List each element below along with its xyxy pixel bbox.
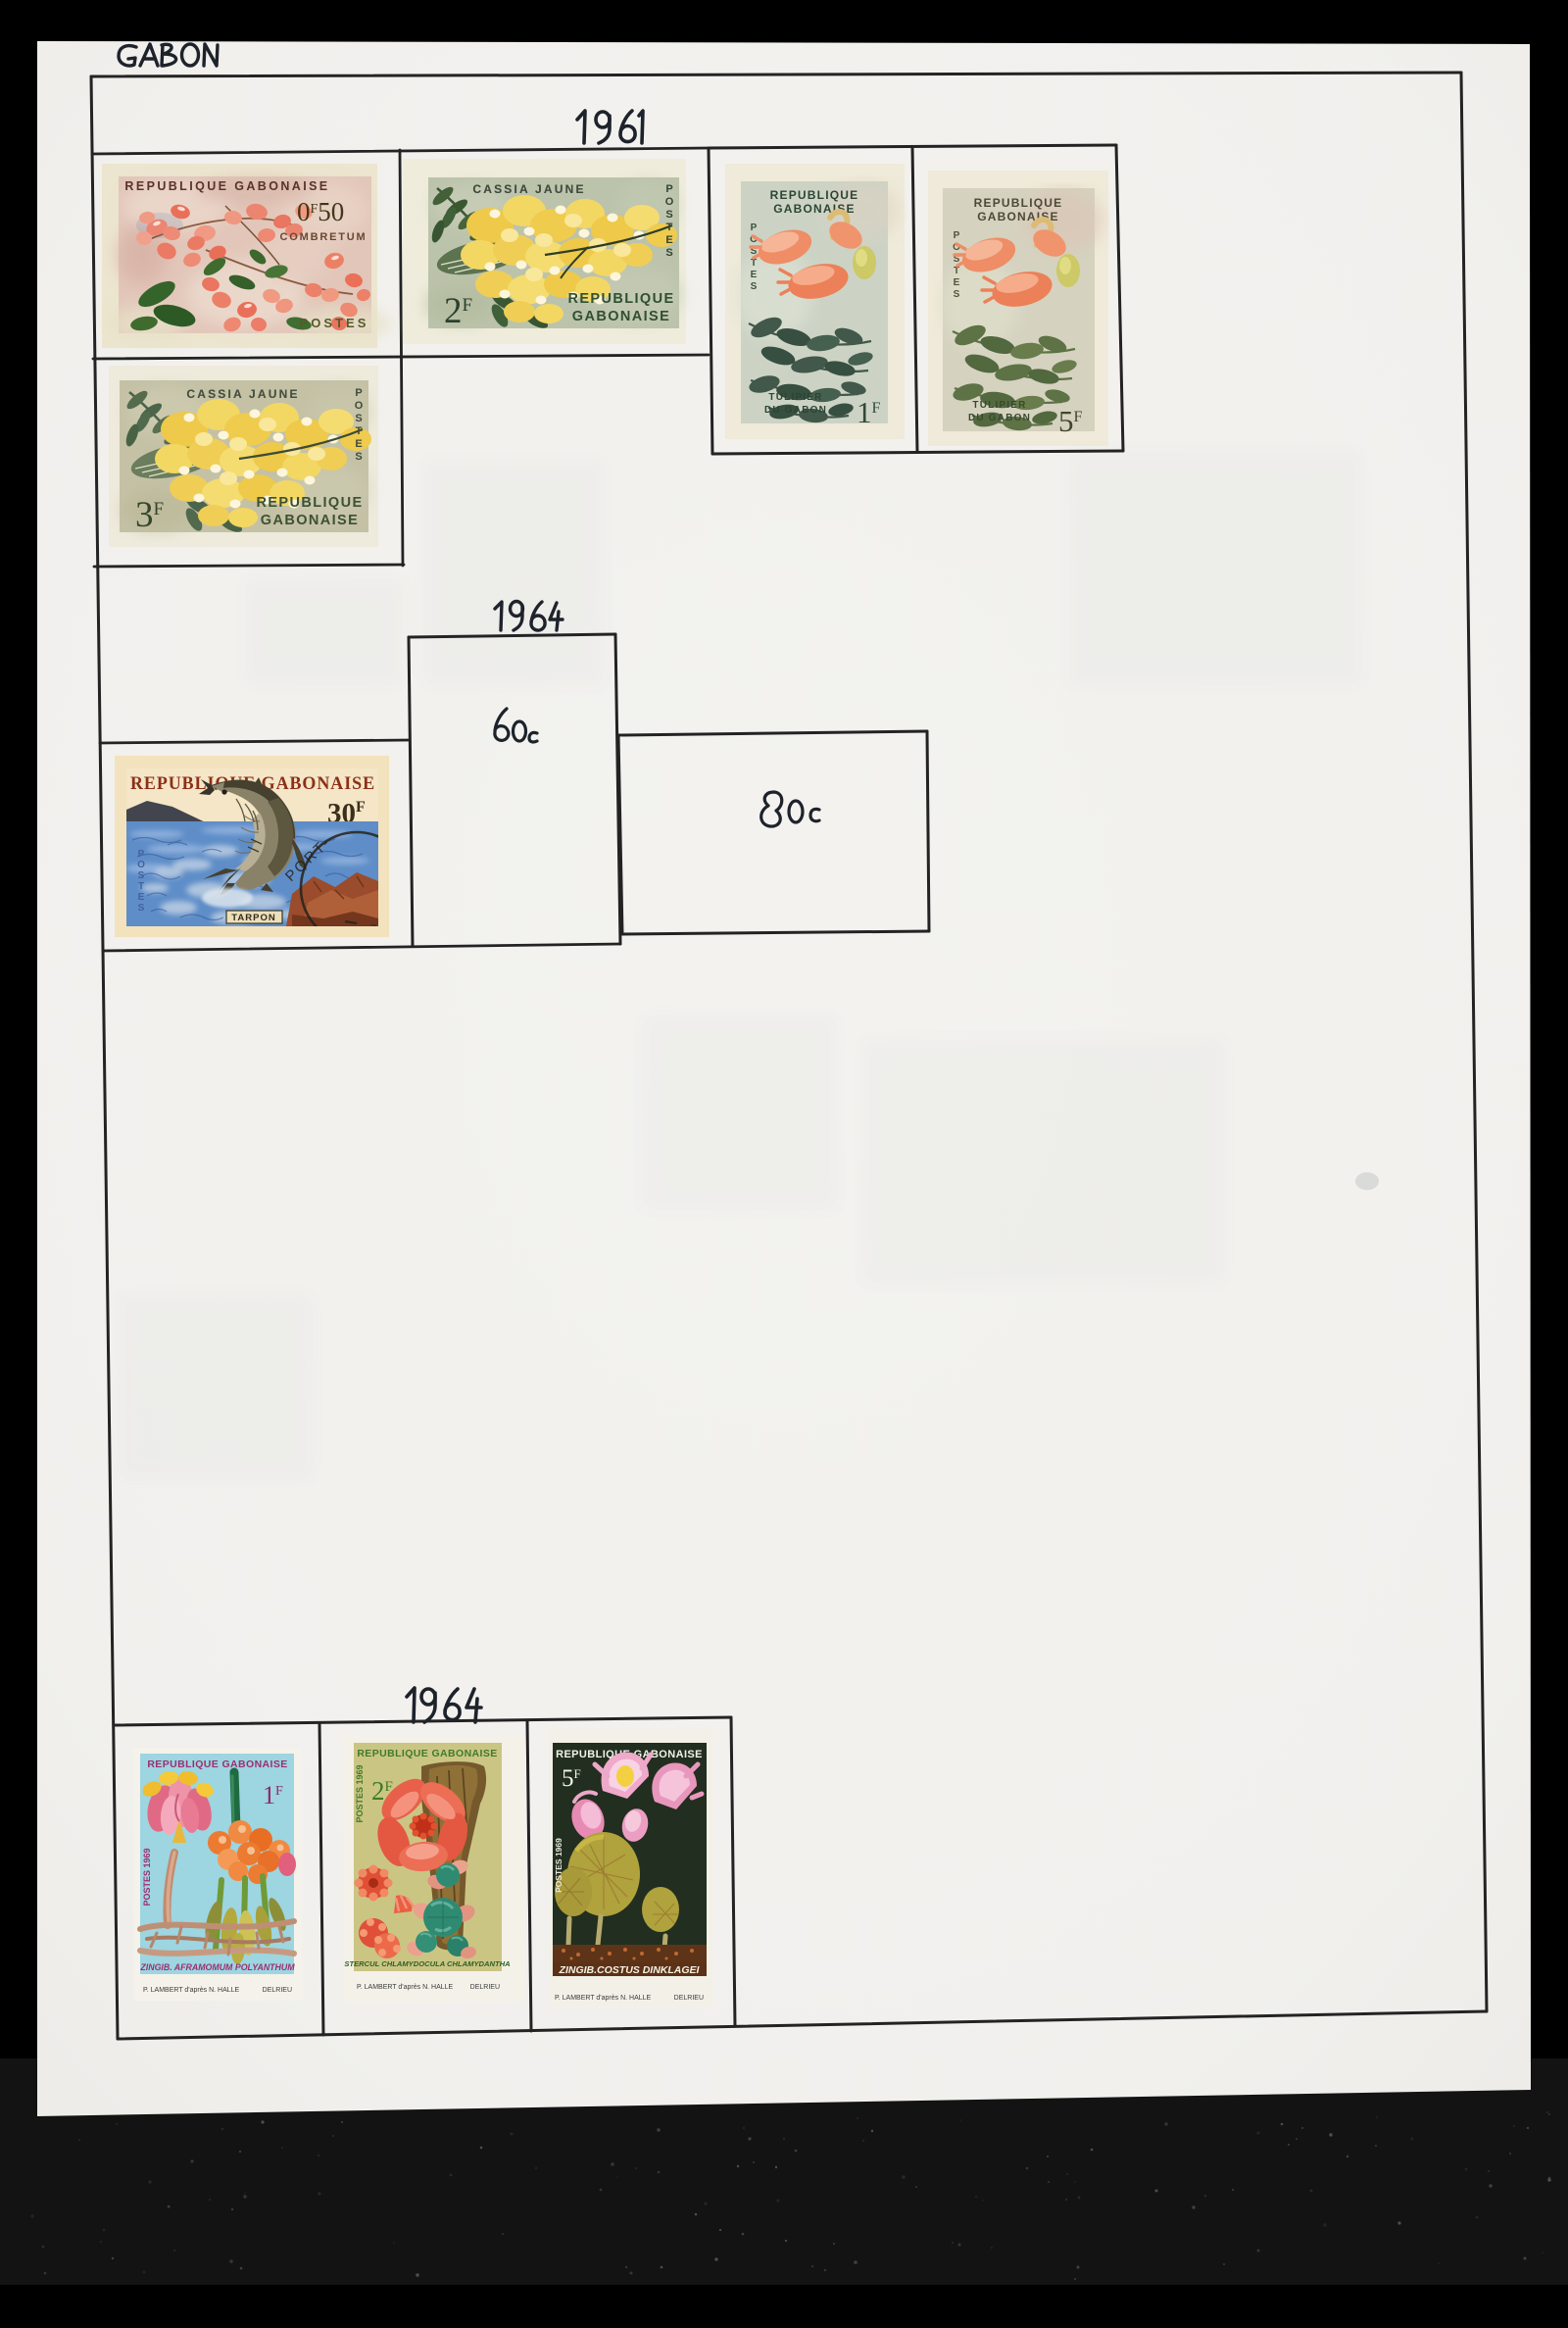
- svg-text:E: E: [665, 234, 672, 246]
- svg-text:S: S: [665, 247, 672, 259]
- svg-text:0F50: 0F50: [297, 197, 344, 226]
- svg-text:S: S: [138, 903, 145, 914]
- svg-text:P: P: [751, 223, 758, 233]
- svg-text:REPUBLIQUE: REPUBLIQUE: [770, 188, 859, 202]
- svg-text:S: S: [954, 289, 960, 300]
- svg-text:P. LAMBERT d'après N. HALLE: P. LAMBERT d'après N. HALLE: [357, 1984, 454, 1991]
- svg-text:TULIPIER: TULIPIER: [768, 392, 822, 403]
- svg-text:STERCUL CHLAMYDOCULA CHLAMYDAN: STERCUL CHLAMYDOCULA CHLAMYDANTHA: [344, 1959, 510, 1968]
- svg-text:P: P: [665, 183, 672, 195]
- svg-text:E: E: [138, 892, 145, 903]
- svg-text:O: O: [355, 400, 364, 412]
- svg-text:E: E: [954, 277, 960, 288]
- svg-text:DELRIEU: DELRIEU: [470, 1984, 500, 1991]
- svg-text:S: S: [138, 870, 145, 881]
- svg-text:O: O: [137, 860, 145, 870]
- svg-text:T: T: [138, 881, 144, 892]
- svg-text:DU GABON: DU GABON: [968, 413, 1031, 423]
- svg-text:ZINGIB. AFRAMOMUM POLYANTHUM: ZINGIB. AFRAMOMUM POLYANTHUM: [139, 1962, 295, 1972]
- svg-text:REPUBLIQUE GABONAISE: REPUBLIQUE GABONAISE: [147, 1758, 287, 1770]
- svg-text:DU GABON: DU GABON: [764, 405, 827, 416]
- svg-text:POSTES: POSTES: [300, 316, 369, 330]
- svg-text:O: O: [665, 196, 674, 208]
- svg-text:COMBRETUM: COMBRETUM: [280, 231, 367, 243]
- svg-text:REPUBLIQUE: REPUBLIQUE: [567, 291, 674, 307]
- svg-text:P. LAMBERT d'après N. HALLE: P. LAMBERT d'après N. HALLE: [143, 1987, 240, 1994]
- svg-text:P. LAMBERT d'après N. HALLE: P. LAMBERT d'après N. HALLE: [555, 1995, 652, 2002]
- svg-text:REPUBLIQUE: REPUBLIQUE: [974, 196, 1063, 210]
- svg-text:REPUBLIQUE GABONAISE: REPUBLIQUE GABONAISE: [124, 179, 329, 193]
- svg-text:GABONAISE: GABONAISE: [261, 513, 359, 528]
- svg-text:CASSIA JAUNE: CASSIA JAUNE: [186, 387, 299, 401]
- svg-text:P: P: [355, 387, 362, 399]
- svg-text:S: S: [665, 209, 672, 221]
- svg-text:T: T: [666, 222, 673, 233]
- svg-text:REPUBLIQUE GABONAISE: REPUBLIQUE GABONAISE: [357, 1748, 497, 1759]
- svg-text:DELRIEU: DELRIEU: [263, 1987, 292, 1994]
- svg-text:TARPON: TARPON: [231, 913, 275, 923]
- svg-text:POSTES 1969: POSTES 1969: [554, 1838, 563, 1893]
- svg-text:CASSIA JAUNE: CASSIA JAUNE: [472, 182, 585, 196]
- svg-text:ZINGIB.COSTUS DINKLAGEI: ZINGIB.COSTUS DINKLAGEI: [559, 1964, 701, 1976]
- svg-text:DELRIEU: DELRIEU: [674, 1995, 704, 2002]
- svg-text:T: T: [954, 266, 959, 276]
- svg-text:POSTES 1969: POSTES 1969: [355, 1764, 365, 1822]
- svg-text:S: S: [751, 281, 758, 292]
- svg-text:P: P: [954, 230, 960, 241]
- svg-text:P: P: [138, 849, 145, 860]
- svg-text:S: S: [355, 451, 362, 463]
- svg-text:TULIPIER: TULIPIER: [972, 400, 1026, 411]
- svg-text:E: E: [355, 438, 362, 450]
- svg-text:S: S: [355, 413, 362, 424]
- svg-text:GABONAISE: GABONAISE: [572, 309, 670, 324]
- svg-text:REPUBLIQUE: REPUBLIQUE: [256, 495, 363, 511]
- svg-text:POSTES 1969: POSTES 1969: [142, 1848, 152, 1906]
- svg-text:E: E: [751, 270, 758, 280]
- svg-text:T: T: [356, 425, 363, 437]
